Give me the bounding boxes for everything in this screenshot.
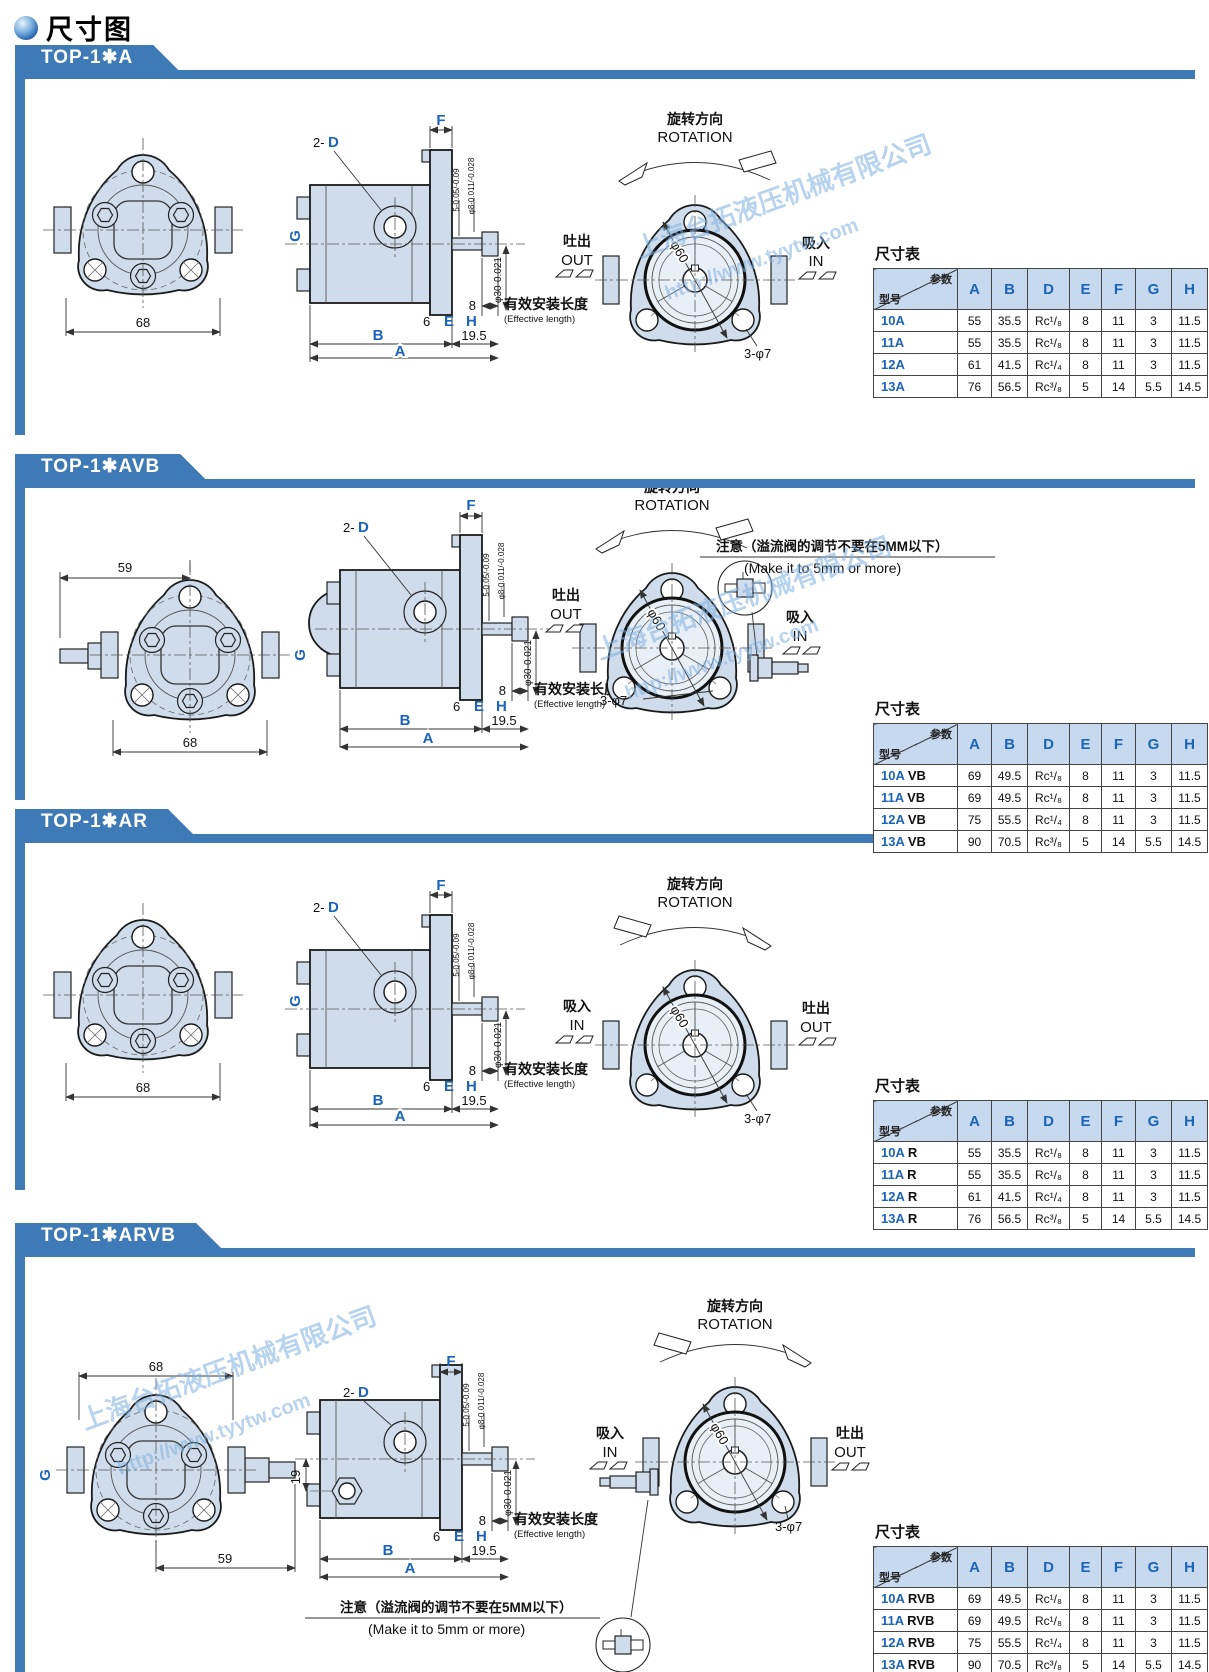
value-cell: 11 xyxy=(1102,1164,1136,1186)
catalog-page: 尺寸图 TOP-1✱A TOP-1✱AVB TOP-1✱AR TOP-1✱ARV… xyxy=(0,0,1209,1672)
dim-f: F xyxy=(436,112,445,129)
value-cell: 11.5 xyxy=(1172,809,1208,831)
value-cell: 61 xyxy=(958,1186,992,1208)
column-header-G: G xyxy=(1136,1547,1172,1588)
value-cell: 8 xyxy=(1070,310,1102,332)
value-cell: 14 xyxy=(1102,1654,1136,1672)
value-cell: 55 xyxy=(958,310,992,332)
label-effective-cn: 有效安装长度 xyxy=(504,1061,589,1077)
side-view: F 2- D G 5-0.05/-0.09 φ8-0.011/-0.028 φ3… xyxy=(285,877,589,1127)
section-tab-top1a: TOP-1✱A xyxy=(15,45,179,71)
value-cell: 11 xyxy=(1102,765,1136,787)
port-symbol xyxy=(799,272,836,279)
dim-59: 59 xyxy=(218,1551,232,1566)
value-cell: 11.5 xyxy=(1172,1164,1208,1186)
value-cell: 3 xyxy=(1136,1164,1172,1186)
dim-68: 68 xyxy=(183,735,197,750)
value-cell: Rc¹/₈ xyxy=(1028,765,1070,787)
table-header-row: 参数型号ABDEFGH xyxy=(874,269,1208,310)
value-cell: 5 xyxy=(1070,1654,1102,1672)
rotation-arrow xyxy=(614,916,771,950)
value-cell: 11.5 xyxy=(1172,1632,1208,1654)
label-out-en: OUT xyxy=(561,252,593,269)
value-cell: 8 xyxy=(1070,765,1102,787)
table-row: 10AVB6949.5Rc¹/₈811311.5 xyxy=(874,765,1208,787)
table-row: 11A5535.5Rc¹/₈811311.5 xyxy=(874,332,1208,354)
dim-d: D xyxy=(358,1384,369,1401)
rotation-view: 旋转方向 ROTATION 吸入 IN 吐出 OUT φ60 3-φ7 xyxy=(590,1298,869,1534)
value-cell: 3 xyxy=(1136,809,1172,831)
column-header-D: D xyxy=(1028,1101,1070,1142)
pump-side-outline xyxy=(315,535,555,700)
table-row: 13ARVB9070.5Rc³/₈5145.514.5 xyxy=(874,1654,1208,1672)
value-cell: 41.5 xyxy=(992,354,1028,376)
rotation-arrow xyxy=(619,151,776,185)
column-header-B: B xyxy=(992,1101,1028,1142)
value-cell: 3 xyxy=(1136,310,1172,332)
dimension-table: 参数型号ABDEFGH10ARVB6949.5Rc¹/₈811311.511AR… xyxy=(873,1546,1208,1672)
dim-6: 6 xyxy=(423,314,430,329)
label-rotation-en: ROTATION xyxy=(657,129,732,146)
dim-2-prefix: 2- xyxy=(313,900,325,915)
value-cell: 61 xyxy=(958,354,992,376)
label-rotation-en: ROTATION xyxy=(697,1316,772,1333)
corner-model-label: 型号 xyxy=(879,1123,901,1139)
value-cell: 11 xyxy=(1102,332,1136,354)
dim-g: G xyxy=(287,230,304,242)
table-header-row: 参数型号ABDEFGH xyxy=(874,1101,1208,1142)
value-cell: Rc¹/₈ xyxy=(1028,1164,1070,1186)
column-header-G: G xyxy=(1136,724,1172,765)
label-in-en: IN xyxy=(809,253,824,270)
tol-phi8: φ8-0.011/-0.028 xyxy=(477,1372,486,1429)
label-effective-en: (Effective length) xyxy=(504,314,575,325)
value-cell: 5.5 xyxy=(1136,1654,1172,1672)
label-rotation-en: ROTATION xyxy=(657,894,732,911)
dim-68: 68 xyxy=(136,1080,150,1095)
value-cell: 11.5 xyxy=(1172,1610,1208,1632)
valve-detail-circle xyxy=(596,1618,650,1672)
label-rotation-cn: 旋转方向 xyxy=(666,111,723,127)
value-cell: 11.5 xyxy=(1172,1142,1208,1164)
dim-8: 8 xyxy=(479,1513,486,1528)
value-cell: 56.5 xyxy=(992,376,1028,398)
dim-f: F xyxy=(446,1353,455,1370)
model-cell: 11A xyxy=(874,332,958,354)
table-header-row: 参数型号ABDEFGH xyxy=(874,724,1208,765)
section-tab-top1avb: TOP-1✱AVB xyxy=(15,454,206,480)
dim-d: D xyxy=(328,899,339,916)
value-cell: 76 xyxy=(958,376,992,398)
section-bullet-icon xyxy=(14,16,38,40)
value-cell: 14.5 xyxy=(1172,1208,1208,1230)
table-corner-cell: 参数型号 xyxy=(874,1101,958,1142)
dim-b: B xyxy=(400,712,411,729)
value-cell: 69 xyxy=(958,765,992,787)
label-out-cn: 吐出 xyxy=(563,233,591,249)
value-cell: 14.5 xyxy=(1172,1654,1208,1672)
label-out-cn: 吐出 xyxy=(802,1000,830,1016)
value-cell: Rc¹/₈ xyxy=(1028,1610,1070,1632)
value-cell: 14 xyxy=(1102,1208,1136,1230)
section-bar xyxy=(15,479,1195,488)
dim-b: B xyxy=(373,1092,384,1109)
dim-68: 68 xyxy=(149,1359,163,1374)
value-cell: 11 xyxy=(1102,809,1136,831)
value-cell: Rc¹/₄ xyxy=(1028,809,1070,831)
value-cell: 8 xyxy=(1070,1632,1102,1654)
label-effective-cn: 有效安装长度 xyxy=(514,1511,599,1527)
table-row: 10A5535.5Rc¹/₈811311.5 xyxy=(874,310,1208,332)
relief-valve xyxy=(600,1469,658,1495)
tol-phi8: φ8-0.011/-0.028 xyxy=(497,542,506,599)
value-cell: 8 xyxy=(1070,1186,1102,1208)
dim-a: A xyxy=(395,343,406,360)
corner-model-label: 型号 xyxy=(879,1569,901,1585)
model-cell: 13AR xyxy=(874,1208,958,1230)
dim-19-5: 19.5 xyxy=(491,713,516,728)
dim-59: 59 xyxy=(118,560,132,575)
value-cell: 41.5 xyxy=(992,1186,1028,1208)
dim-6: 6 xyxy=(423,1079,430,1094)
column-header-H: H xyxy=(1172,1547,1208,1588)
pump-front-outline xyxy=(43,138,243,308)
section-tab-top1ar: TOP-1✱AR xyxy=(15,809,194,835)
label-out-cn: 吐出 xyxy=(552,587,580,603)
pump-front-outline xyxy=(90,563,290,733)
value-cell: 3 xyxy=(1136,1142,1172,1164)
table-corner-cell: 参数型号 xyxy=(874,269,958,310)
label-rotation-cn: 旋转方向 xyxy=(666,876,723,892)
pump-rotation-outline xyxy=(635,1377,835,1534)
value-cell: 14 xyxy=(1102,831,1136,853)
corner-model-label: 型号 xyxy=(879,746,901,762)
table-corner-cell: 参数型号 xyxy=(874,1547,958,1588)
tol-5: 5-0.05/-0.09 xyxy=(452,933,461,977)
label-in-cn: 吸入 xyxy=(563,998,591,1014)
value-cell: 49.5 xyxy=(992,787,1028,809)
port-symbol xyxy=(546,625,583,632)
column-header-F: F xyxy=(1102,724,1136,765)
tol-5: 5-0.05/-0.09 xyxy=(452,168,461,212)
note-en: (Make it to 5mm or more) xyxy=(368,1621,525,1637)
column-header-E: E xyxy=(1070,269,1102,310)
value-cell: 35.5 xyxy=(992,1164,1028,1186)
relief-valve xyxy=(750,655,808,681)
value-cell: 3 xyxy=(1136,332,1172,354)
value-cell: 11 xyxy=(1102,1186,1136,1208)
page-title: 尺寸图 xyxy=(46,8,133,47)
column-header-G: G xyxy=(1136,1101,1172,1142)
dim-8: 8 xyxy=(469,1063,476,1078)
dimension-table: 参数型号ABDEFGH10AR5535.5Rc¹/₈811311.511AR55… xyxy=(873,1100,1208,1230)
value-cell: 35.5 xyxy=(992,310,1028,332)
value-cell: 90 xyxy=(958,1654,992,1672)
value-cell: 75 xyxy=(958,1632,992,1654)
column-header-E: E xyxy=(1070,724,1102,765)
value-cell: 8 xyxy=(1070,809,1102,831)
value-cell: 3 xyxy=(1136,1610,1172,1632)
dim-3phi7: 3-φ7 xyxy=(775,1519,802,1534)
corner-param-label: 参数 xyxy=(930,726,952,742)
column-header-H: H xyxy=(1172,1101,1208,1142)
pump-rotation-outline xyxy=(595,960,795,1117)
column-header-A: A xyxy=(958,1547,992,1588)
rotation-arrow xyxy=(654,1333,811,1367)
column-header-G: G xyxy=(1136,269,1172,310)
value-cell: Rc¹/₈ xyxy=(1028,332,1070,354)
value-cell: 5.5 xyxy=(1136,831,1172,853)
front-view: 68 xyxy=(43,903,243,1101)
value-cell: 8 xyxy=(1070,354,1102,376)
value-cell: 11.5 xyxy=(1172,787,1208,809)
dim-b: B xyxy=(373,327,384,344)
value-cell: 5.5 xyxy=(1136,376,1172,398)
value-cell: Rc³/₈ xyxy=(1028,376,1070,398)
model-cell: 11AVB xyxy=(874,787,958,809)
value-cell: 11.5 xyxy=(1172,765,1208,787)
value-cell: 70.5 xyxy=(992,831,1028,853)
value-cell: 8 xyxy=(1070,1142,1102,1164)
value-cell: 49.5 xyxy=(992,1588,1028,1610)
front-view: 68 xyxy=(43,138,243,336)
value-cell: 11 xyxy=(1102,354,1136,376)
table-row: 11AR5535.5Rc¹/₈811311.5 xyxy=(874,1164,1208,1186)
label-out-en: OUT xyxy=(800,1019,832,1036)
value-cell: 11 xyxy=(1102,1610,1136,1632)
value-cell: 3 xyxy=(1136,787,1172,809)
table-header-row: 参数型号ABDEFGH xyxy=(874,1547,1208,1588)
label-out-en: OUT xyxy=(550,606,582,623)
dim-e: E xyxy=(444,313,454,330)
corner-param-label: 参数 xyxy=(930,1549,952,1565)
value-cell: Rc¹/₈ xyxy=(1028,310,1070,332)
value-cell: 8 xyxy=(1070,1164,1102,1186)
table-block-top1a: 尺寸表 参数型号ABDEFGH10A5535.5Rc¹/₈811311.511A… xyxy=(873,243,1208,398)
table-container: 参数型号ABDEFGH10AVB6949.5Rc¹/₈811311.511AVB… xyxy=(873,723,1208,853)
dim-2-prefix: 2- xyxy=(343,1385,355,1400)
table-row: 13AR7656.5Rc³/₈5145.514.5 xyxy=(874,1208,1208,1230)
model-cell: 12ARVB xyxy=(874,1632,958,1654)
column-header-B: B xyxy=(992,269,1028,310)
dim-phi30: φ30-0.021 xyxy=(523,640,534,686)
column-header-H: H xyxy=(1172,269,1208,310)
value-cell: 55.5 xyxy=(992,809,1028,831)
value-cell: 70.5 xyxy=(992,1654,1028,1672)
value-cell: 11 xyxy=(1102,310,1136,332)
value-cell: 75 xyxy=(958,809,992,831)
column-header-D: D xyxy=(1028,269,1070,310)
table-row: 13AVB9070.5Rc³/₈5145.514.5 xyxy=(874,831,1208,853)
table-container: 参数型号ABDEFGH10ARVB6949.5Rc¹/₈811311.511AR… xyxy=(873,1546,1208,1672)
dim-a: A xyxy=(423,730,434,747)
dim-phi30: φ30-0.021 xyxy=(493,1022,504,1068)
label-effective-en: (Effective length) xyxy=(504,1079,575,1090)
table-row: 12AVB7555.5Rc¹/₄811311.5 xyxy=(874,809,1208,831)
column-header-A: A xyxy=(958,269,992,310)
section-bar xyxy=(15,1248,1195,1257)
column-header-B: B xyxy=(992,1547,1028,1588)
model-cell: 10AVB xyxy=(874,765,958,787)
dim-e: E xyxy=(454,1528,464,1545)
value-cell: 49.5 xyxy=(992,1610,1028,1632)
value-cell: 76 xyxy=(958,1208,992,1230)
dim-3phi7: 3-φ7 xyxy=(744,1111,771,1126)
dim-phi30: φ30-0.021 xyxy=(493,257,504,303)
label-out-cn: 吐出 xyxy=(836,1425,864,1441)
dim-phi30: φ30-0.021 xyxy=(503,1470,514,1516)
dimension-table: 参数型号ABDEFGH10AVB6949.5Rc¹/₈811311.511AVB… xyxy=(873,723,1208,853)
value-cell: 11.5 xyxy=(1172,332,1208,354)
label-effective-cn: 有效安装长度 xyxy=(504,296,589,312)
table-row: 10ARVB6949.5Rc¹/₈811311.5 xyxy=(874,1588,1208,1610)
model-cell: 11AR xyxy=(874,1164,958,1186)
table-block-top1arvb: 尺寸表 参数型号ABDEFGH10ARVB6949.5Rc¹/₈811311.5… xyxy=(873,1521,1208,1672)
model-cell: 12AVB xyxy=(874,809,958,831)
port-symbol xyxy=(799,1038,836,1045)
label-effective-en: (Effective length) xyxy=(514,1529,585,1540)
value-cell: 3 xyxy=(1136,765,1172,787)
value-cell: 3 xyxy=(1136,354,1172,376)
value-cell: 8 xyxy=(1070,332,1102,354)
dim-d: D xyxy=(328,134,339,151)
value-cell: 5.5 xyxy=(1136,1208,1172,1230)
value-cell: 69 xyxy=(958,1588,992,1610)
dim-2-prefix: 2- xyxy=(313,135,325,150)
column-header-F: F xyxy=(1102,269,1136,310)
column-header-B: B xyxy=(992,724,1028,765)
column-header-H: H xyxy=(1172,724,1208,765)
table-block-top1ar: 尺寸表 参数型号ABDEFGH10AR5535.5Rc¹/₈811311.511… xyxy=(873,1075,1208,1230)
column-header-F: F xyxy=(1102,1547,1136,1588)
value-cell: 5 xyxy=(1070,1208,1102,1230)
model-cell: 10ARVB xyxy=(874,1588,958,1610)
model-cell: 11ARVB xyxy=(874,1610,958,1632)
label-out-en: OUT xyxy=(834,1444,866,1461)
value-cell: 55 xyxy=(958,1164,992,1186)
label-in-cn: 吸入 xyxy=(596,1425,624,1441)
column-header-F: F xyxy=(1102,1101,1136,1142)
model-cell: 13ARVB xyxy=(874,1654,958,1672)
value-cell: 11.5 xyxy=(1172,310,1208,332)
port-symbol xyxy=(832,1463,869,1470)
dimension-table: 参数型号ABDEFGH10A5535.5Rc¹/₈811311.511A5535… xyxy=(873,268,1208,398)
value-cell: 3 xyxy=(1136,1632,1172,1654)
label-in-en: IN xyxy=(570,1017,585,1034)
table-block-top1avb: 尺寸表 参数型号ABDEFGH10AVB6949.5Rc¹/₈811311.51… xyxy=(873,698,1208,853)
corner-param-label: 参数 xyxy=(930,271,952,287)
value-cell: 8 xyxy=(1070,1588,1102,1610)
dim-g: G xyxy=(287,995,304,1007)
table-container: 参数型号ABDEFGH10A5535.5Rc¹/₈811311.511A5535… xyxy=(873,268,1208,398)
label-rotation-cn: 旋转方向 xyxy=(706,1298,763,1314)
table-row: 12ARVB7555.5Rc¹/₄811311.5 xyxy=(874,1632,1208,1654)
table-container: 参数型号ABDEFGH10AR5535.5Rc¹/₈811311.511AR55… xyxy=(873,1100,1208,1230)
value-cell: 55.5 xyxy=(992,1632,1028,1654)
value-cell: 69 xyxy=(958,1610,992,1632)
value-cell: 35.5 xyxy=(992,1142,1028,1164)
table-title: 尺寸表 xyxy=(875,1521,1208,1542)
value-cell: 55 xyxy=(958,1142,992,1164)
dim-68: 68 xyxy=(136,315,150,330)
label-rotation-cn: 旋转方向 xyxy=(643,488,700,495)
label-rotation-en: ROTATION xyxy=(634,497,709,514)
note-cn: 注意（溢流阀的调节不要在5MM以下） xyxy=(340,1599,573,1615)
dim-b: B xyxy=(383,1542,394,1559)
section-tab-top1arvb: TOP-1✱ARVB xyxy=(15,1223,222,1249)
value-cell: Rc¹/₈ xyxy=(1028,1142,1070,1164)
value-cell: Rc³/₈ xyxy=(1028,831,1070,853)
value-cell: 3 xyxy=(1136,1186,1172,1208)
model-cell: 13AVB xyxy=(874,831,958,853)
value-cell: 11 xyxy=(1102,1632,1136,1654)
pump-side-outline xyxy=(295,1365,535,1530)
dim-19-5: 19.5 xyxy=(471,1543,496,1558)
tol-5: 5-0.05/-0.09 xyxy=(482,553,491,597)
table-row: 13A7656.5Rc³/₈5145.514.5 xyxy=(874,376,1208,398)
value-cell: 11.5 xyxy=(1172,1186,1208,1208)
dim-d: D xyxy=(358,519,369,536)
column-header-A: A xyxy=(958,1101,992,1142)
port-symbol xyxy=(556,1036,593,1043)
value-cell: 11 xyxy=(1102,787,1136,809)
value-cell: 8 xyxy=(1070,787,1102,809)
column-header-D: D xyxy=(1028,724,1070,765)
dim-a: A xyxy=(405,1560,416,1577)
dim-8: 8 xyxy=(469,298,476,313)
dim-g: G xyxy=(37,1469,54,1481)
table-row: 10AR5535.5Rc¹/₈811311.5 xyxy=(874,1142,1208,1164)
pump-front-outline xyxy=(43,903,243,1073)
value-cell: 3 xyxy=(1136,1588,1172,1610)
dim-a: A xyxy=(395,1108,406,1125)
model-cell: 10AR xyxy=(874,1142,958,1164)
dim-3phi7: 3-φ7 xyxy=(600,693,627,708)
pump-side-outline xyxy=(285,915,525,1080)
dim-f: F xyxy=(466,497,475,514)
value-cell: 69 xyxy=(958,787,992,809)
value-cell: 11 xyxy=(1102,1588,1136,1610)
side-view: F 2- D G 5-0.05/-0.09 φ8-0.011/-0.028 φ3… xyxy=(285,112,589,362)
tol-phi8: φ8-0.011/-0.028 xyxy=(467,157,476,214)
pump-side-outline xyxy=(285,150,525,315)
model-cell: 12A xyxy=(874,354,958,376)
side-view: F 2- D 19 5-0.05/-0.09 φ8-0.011/-0.028 φ… xyxy=(288,1353,600,1637)
front-view: 59 68 G xyxy=(60,560,309,756)
value-cell: Rc¹/₄ xyxy=(1028,1632,1070,1654)
corner-model-label: 型号 xyxy=(879,291,901,307)
dim-6: 6 xyxy=(433,1529,440,1544)
value-cell: 35.5 xyxy=(992,332,1028,354)
value-cell: Rc³/₈ xyxy=(1028,1208,1070,1230)
dim-19-5: 19.5 xyxy=(461,328,486,343)
dim-e: E xyxy=(444,1078,454,1095)
dim-6: 6 xyxy=(453,699,460,714)
dim-8: 8 xyxy=(499,683,506,698)
corner-param-label: 参数 xyxy=(930,1103,952,1119)
column-header-E: E xyxy=(1070,1101,1102,1142)
value-cell: 5 xyxy=(1070,376,1102,398)
column-header-A: A xyxy=(958,724,992,765)
value-cell: Rc¹/₄ xyxy=(1028,1186,1070,1208)
value-cell: Rc¹/₈ xyxy=(1028,1588,1070,1610)
port-symbol xyxy=(556,270,593,277)
label-effective-en: (Effective length) xyxy=(534,699,605,710)
value-cell: 11 xyxy=(1102,1142,1136,1164)
table-title: 尺寸表 xyxy=(875,243,1208,264)
dim-19-5: 19.5 xyxy=(461,1093,486,1108)
table-title: 尺寸表 xyxy=(875,1075,1208,1096)
